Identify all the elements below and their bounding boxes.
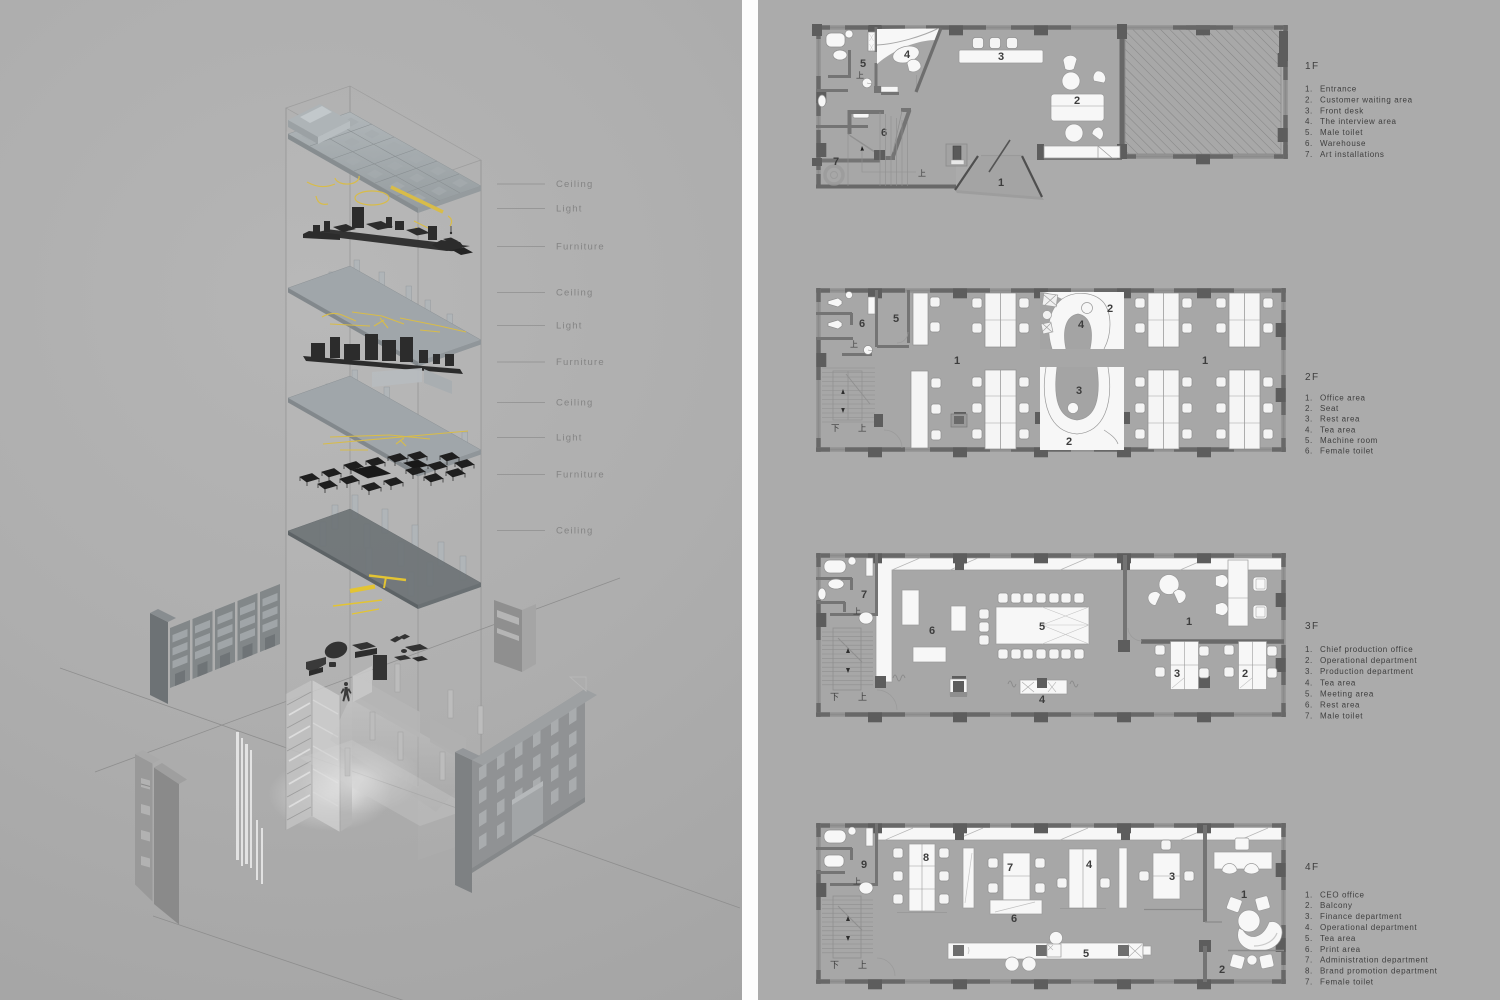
svg-text:5.: 5.: [1305, 689, 1313, 698]
svg-text:3.: 3.: [1305, 415, 1313, 424]
svg-text:上: 上: [853, 877, 861, 886]
svg-text:Machine room: Machine room: [1320, 436, 1378, 445]
svg-text:1.: 1.: [1305, 85, 1313, 94]
svg-text:6.: 6.: [1305, 447, 1313, 456]
svg-text:6: 6: [881, 127, 887, 139]
svg-text:Ceiling: Ceiling: [556, 526, 593, 537]
svg-text:上: 上: [858, 692, 867, 702]
svg-text:3.: 3.: [1305, 912, 1313, 921]
svg-text:Administration department: Administration department: [1320, 956, 1429, 965]
svg-text:Production department: Production department: [1320, 667, 1414, 676]
svg-text:7.: 7.: [1305, 956, 1313, 965]
svg-text:Finance department: Finance department: [1320, 912, 1402, 921]
svg-text:Ceiling: Ceiling: [556, 179, 593, 190]
svg-text:Tea area: Tea area: [1320, 678, 1356, 687]
svg-text:7.: 7.: [1305, 712, 1313, 721]
svg-text:1F: 1F: [1305, 61, 1320, 72]
svg-text:7.: 7.: [1305, 150, 1313, 159]
svg-text:The interview area: The interview area: [1320, 117, 1397, 126]
svg-text:2: 2: [1074, 95, 1080, 107]
svg-text:1.: 1.: [1305, 394, 1313, 403]
svg-text:5.: 5.: [1305, 436, 1313, 445]
svg-text:Operational department: Operational department: [1320, 656, 1417, 665]
svg-text:6.: 6.: [1305, 701, 1313, 710]
svg-text:1: 1: [1186, 616, 1192, 628]
svg-text:上: 上: [858, 960, 867, 970]
svg-text:4: 4: [1039, 694, 1046, 706]
svg-text:5: 5: [1039, 621, 1045, 633]
svg-text:Meeting area: Meeting area: [1320, 689, 1374, 698]
svg-text:上: 上: [856, 71, 864, 80]
svg-text:Female toilet: Female toilet: [1320, 978, 1374, 987]
svg-text:4.: 4.: [1305, 425, 1313, 434]
svg-text:Chief production office: Chief production office: [1320, 645, 1413, 654]
svg-text:1.: 1.: [1305, 645, 1313, 654]
svg-text:5.: 5.: [1305, 934, 1313, 943]
svg-text:Light: Light: [556, 433, 583, 444]
svg-text:5: 5: [1083, 948, 1089, 960]
svg-text:上: 上: [918, 169, 926, 178]
svg-text:上: 上: [858, 423, 867, 433]
svg-text:Operational department: Operational department: [1320, 923, 1417, 932]
svg-text:Rest area: Rest area: [1320, 415, 1360, 424]
svg-text:6: 6: [929, 625, 935, 637]
svg-text:8.: 8.: [1305, 967, 1313, 976]
svg-text:Ceiling: Ceiling: [556, 398, 593, 409]
svg-text:Art installations: Art installations: [1320, 150, 1384, 159]
svg-text:2: 2: [1219, 964, 1225, 976]
svg-text:Brand promotion department: Brand promotion department: [1320, 967, 1438, 976]
svg-text:上: 上: [850, 340, 858, 349]
svg-text:2.: 2.: [1305, 404, 1313, 413]
svg-text:6: 6: [859, 318, 865, 330]
svg-text:Warehouse: Warehouse: [1320, 139, 1366, 148]
svg-text:9: 9: [861, 859, 867, 871]
svg-text:1: 1: [998, 177, 1004, 189]
svg-text:1.: 1.: [1305, 890, 1313, 899]
svg-text:1: 1: [954, 355, 960, 367]
svg-text:Entrance: Entrance: [1320, 85, 1357, 94]
svg-text:4F: 4F: [1305, 862, 1320, 873]
svg-text:5: 5: [893, 313, 899, 325]
svg-text:4.: 4.: [1305, 678, 1313, 687]
svg-text:4: 4: [1086, 859, 1093, 871]
svg-text:7.: 7.: [1305, 978, 1313, 987]
svg-text:Rest area: Rest area: [1320, 701, 1360, 710]
svg-text:1: 1: [1202, 355, 1208, 367]
svg-text:7: 7: [1007, 862, 1013, 874]
svg-text:4.: 4.: [1305, 117, 1313, 126]
svg-text:8: 8: [923, 852, 929, 864]
svg-text:3.: 3.: [1305, 667, 1313, 676]
svg-text:Office area: Office area: [1320, 394, 1366, 403]
svg-text:7: 7: [833, 156, 839, 168]
svg-text:Customer waiting area: Customer waiting area: [1320, 95, 1413, 104]
svg-text:Furniture: Furniture: [556, 242, 605, 253]
svg-text:4: 4: [1078, 319, 1085, 331]
svg-text:Furniture: Furniture: [556, 470, 605, 481]
svg-text:Print area: Print area: [1320, 945, 1361, 954]
svg-text:Tea area: Tea area: [1320, 425, 1356, 434]
svg-text:5: 5: [860, 58, 866, 70]
svg-text:Light: Light: [556, 321, 583, 332]
svg-text:下: 下: [830, 692, 839, 702]
svg-text:Female toilet: Female toilet: [1320, 447, 1374, 456]
svg-text:Seat: Seat: [1320, 404, 1339, 413]
svg-text:Balcony: Balcony: [1320, 901, 1353, 910]
svg-text:下: 下: [831, 423, 840, 433]
svg-text:CEO office: CEO office: [1320, 890, 1365, 899]
svg-text:3: 3: [1076, 385, 1082, 397]
svg-text:Male toilet: Male toilet: [1320, 712, 1363, 721]
svg-text:2F: 2F: [1305, 372, 1320, 383]
svg-text:2: 2: [1107, 303, 1113, 315]
svg-text:4.: 4.: [1305, 923, 1313, 932]
svg-text:2: 2: [1242, 668, 1248, 680]
svg-text:Front desk: Front desk: [1320, 106, 1364, 115]
svg-text:Furniture: Furniture: [556, 357, 605, 368]
svg-text:4: 4: [904, 49, 911, 61]
svg-text:3F: 3F: [1305, 621, 1320, 632]
svg-text:6.: 6.: [1305, 139, 1313, 148]
svg-text:Male toilet: Male toilet: [1320, 128, 1363, 137]
svg-text:Ceiling: Ceiling: [556, 288, 593, 299]
svg-text:2.: 2.: [1305, 901, 1313, 910]
svg-text:3: 3: [998, 51, 1004, 63]
svg-text:6.: 6.: [1305, 945, 1313, 954]
svg-text:5.: 5.: [1305, 128, 1313, 137]
svg-text:上: 上: [853, 607, 861, 616]
svg-text:Tea area: Tea area: [1320, 934, 1356, 943]
svg-text:Light: Light: [556, 204, 583, 215]
svg-text:3: 3: [1174, 668, 1180, 680]
svg-text:3.: 3.: [1305, 106, 1313, 115]
svg-text:7: 7: [861, 589, 867, 601]
svg-text:2.: 2.: [1305, 656, 1313, 665]
svg-text:3: 3: [1169, 871, 1175, 883]
svg-text:2: 2: [1066, 436, 1072, 448]
svg-text:6: 6: [1011, 913, 1017, 925]
svg-text:1: 1: [1241, 889, 1247, 901]
svg-text:2.: 2.: [1305, 95, 1313, 104]
svg-text:下: 下: [830, 960, 839, 970]
